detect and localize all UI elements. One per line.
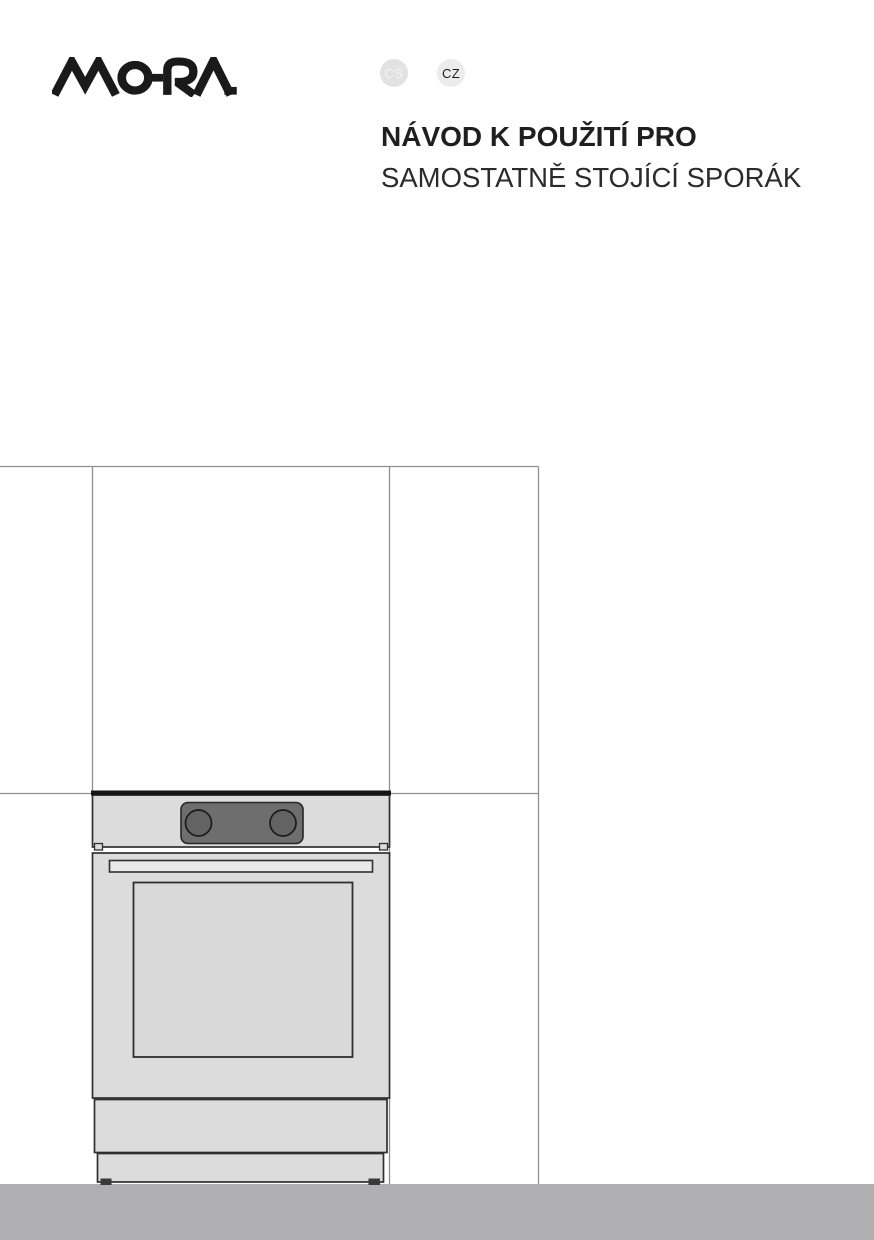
logo-letter-m (54, 62, 115, 95)
mora-logo-graphic (52, 57, 238, 97)
oven-door-glass (134, 883, 353, 1058)
kitchen-cooker-illustration (0, 460, 874, 1240)
page-title: NÁVOD K POUŽITÍ PRO SAMOSTATNĚ STOJÍCÍ S… (381, 116, 801, 198)
oven-door-handle (110, 861, 373, 873)
manual-cover-page: MORA CS CZ NÁVOD K POUŽITÍ PRO SAMOSTATN… (0, 0, 874, 1240)
storage-drawer (95, 1100, 388, 1153)
logo-letter-o (122, 65, 149, 90)
hob-surface-edge (91, 791, 391, 796)
floor-strip (0, 1184, 874, 1240)
vent-notch-left (95, 844, 103, 851)
foot-left (101, 1179, 112, 1186)
control-knob-left (186, 810, 212, 836)
logo-letter-a-foot (224, 87, 236, 95)
logo-hyphen (152, 74, 163, 82)
vent-notch-right (380, 844, 388, 851)
title-line-2: SAMOSTATNĚ STOJÍCÍ SPORÁK (381, 157, 801, 198)
free-standing-cooker (91, 791, 391, 1186)
mora-logo: MORA (52, 57, 238, 97)
control-knob-right (270, 810, 296, 836)
title-line-1: NÁVOD K POUŽITÍ PRO (381, 116, 801, 157)
language-badge-cz: CZ (437, 59, 465, 87)
foot-right (369, 1179, 381, 1186)
plinth (98, 1154, 384, 1183)
language-badge-cs: CS (380, 59, 408, 87)
logo-letter-r-leg (177, 82, 194, 94)
brand-name: MORA (238, 57, 239, 58)
